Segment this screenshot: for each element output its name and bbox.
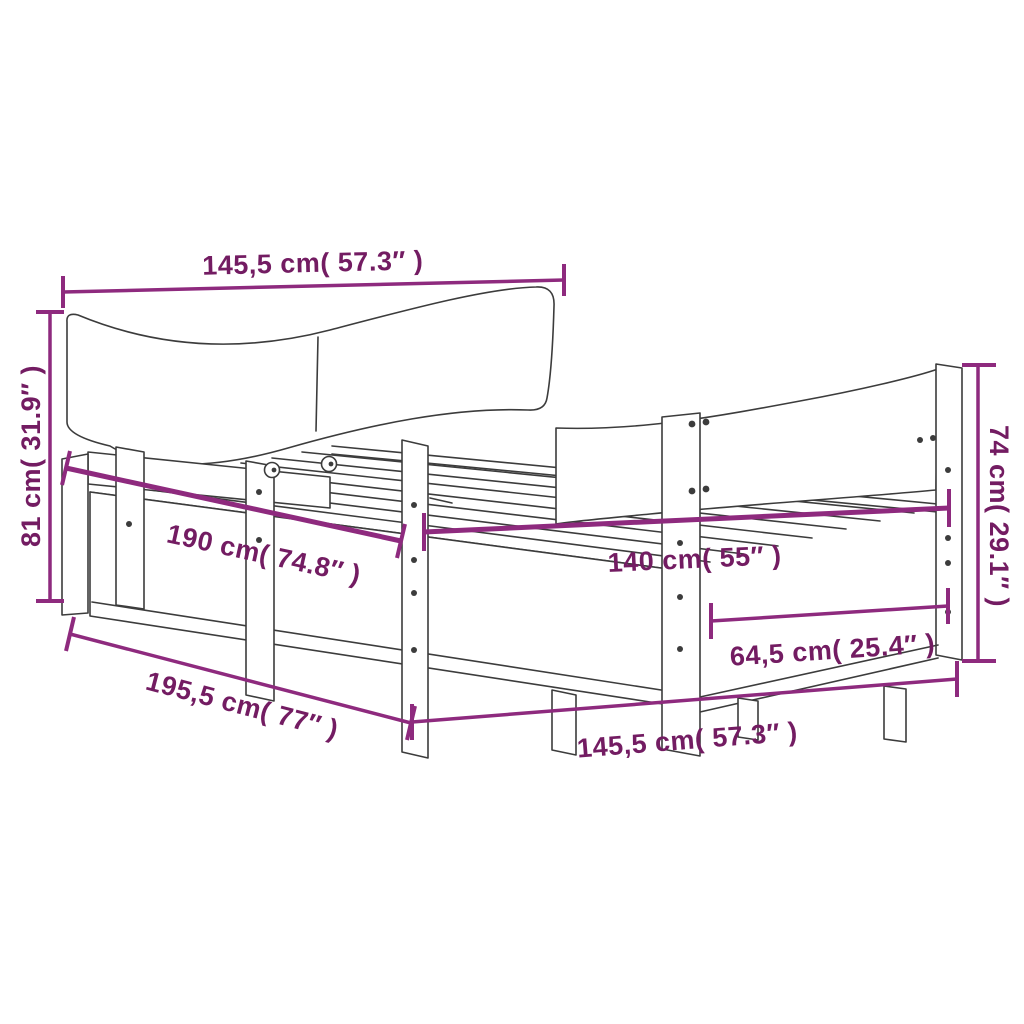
dimension-footboard-height: 74 cm( 29.1″ ) bbox=[962, 365, 1014, 661]
headboard-end-board bbox=[62, 454, 88, 615]
headboard-panel bbox=[67, 287, 554, 464]
dimension-foot-section: 64,5 cm( 25.4″ ) bbox=[711, 588, 948, 672]
headboard-leg-left bbox=[116, 447, 144, 609]
footboard-panel bbox=[556, 369, 938, 524]
bed-frame-diagram: 145,5 cm( 57.3″ ) 81 cm( 31.9″ ) 190 cm(… bbox=[0, 0, 1024, 1024]
dim-label-bed-width: 140 cm( 55″ ) bbox=[607, 540, 782, 578]
dimension-headboard-height: 81 cm( 31.9″ ) bbox=[16, 312, 64, 601]
product-dimension-diagram: 145,5 cm( 57.3″ ) 81 cm( 31.9″ ) 190 cm(… bbox=[0, 0, 1024, 1024]
dim-label-footboard-height: 74 cm( 29.1″ ) bbox=[984, 425, 1014, 607]
dim-label-headboard-height: 81 cm( 31.9″ ) bbox=[16, 365, 46, 547]
footboard-left-post bbox=[662, 413, 700, 756]
dim-label-headboard-width-top: 145,5 cm( 57.3″ ) bbox=[202, 245, 424, 280]
headboard-leg-right bbox=[246, 461, 274, 701]
